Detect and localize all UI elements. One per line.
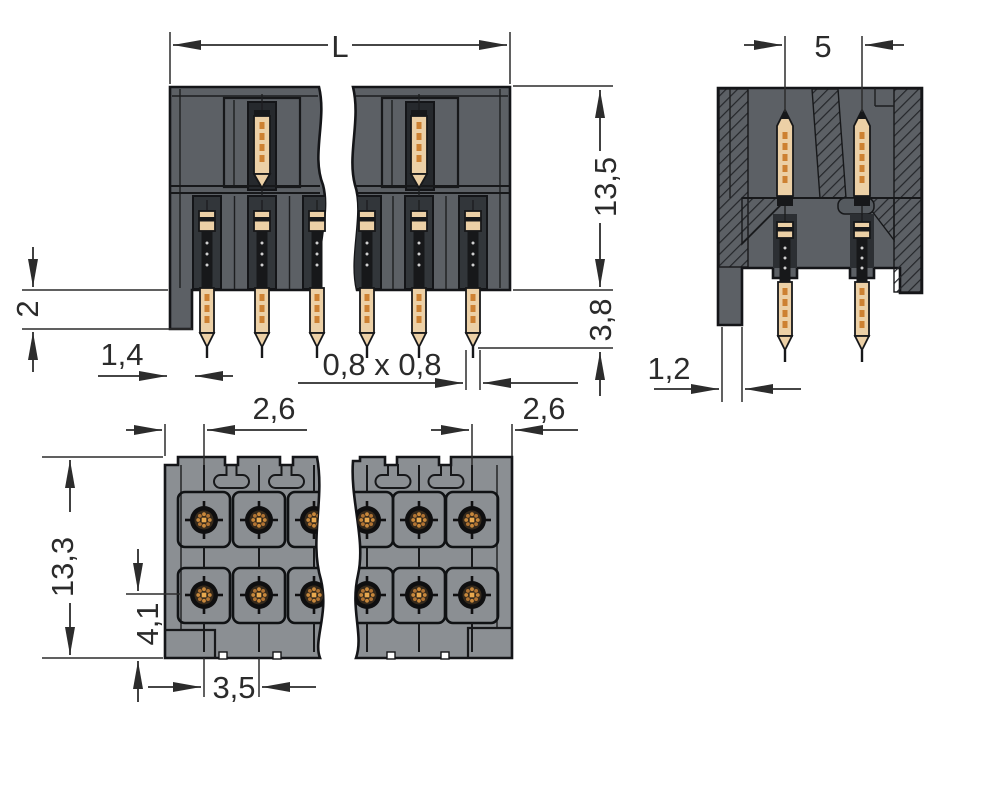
dim-label-tab-height: 2 [10,300,45,317]
section-hatch-right-wall [894,89,921,292]
drawing-canvas: L 13,5 3,8 2 1,4 [0,0,1000,795]
dim-label-tab-width: 1,4 [100,337,143,372]
dim-label-side-tab-width: 1,2 [647,351,690,386]
dim-label-pin-pitch: 3,5 [212,670,255,705]
bottom-edge-notch [219,652,227,659]
dim-label-edge-to-hole-right: 2,6 [522,391,565,426]
technical-drawing: L 13,5 3,8 2 1,4 [0,0,1000,795]
dim-label-hole-row-offset: 4,1 [130,602,165,645]
bottom-edge-notch [387,652,395,659]
pin [854,110,870,215]
dim-label-row-pitch: 5 [814,29,831,64]
dim-label-pin-cross-section: 0,8 x 0,8 [323,347,442,382]
pin [854,214,870,362]
dim-label-height: 13,5 [588,157,623,217]
pin [777,110,793,215]
pin [777,214,793,362]
dim-label-bottom-height: 13,3 [45,537,80,597]
bottom-edge-notch [441,652,449,659]
dim-label-pin-protrusion: 3,8 [583,298,618,341]
bottom-edge-notch [273,652,281,659]
dim-label-edge-to-hole-left: 2,6 [252,391,295,426]
dim-label-length: L [331,29,348,64]
